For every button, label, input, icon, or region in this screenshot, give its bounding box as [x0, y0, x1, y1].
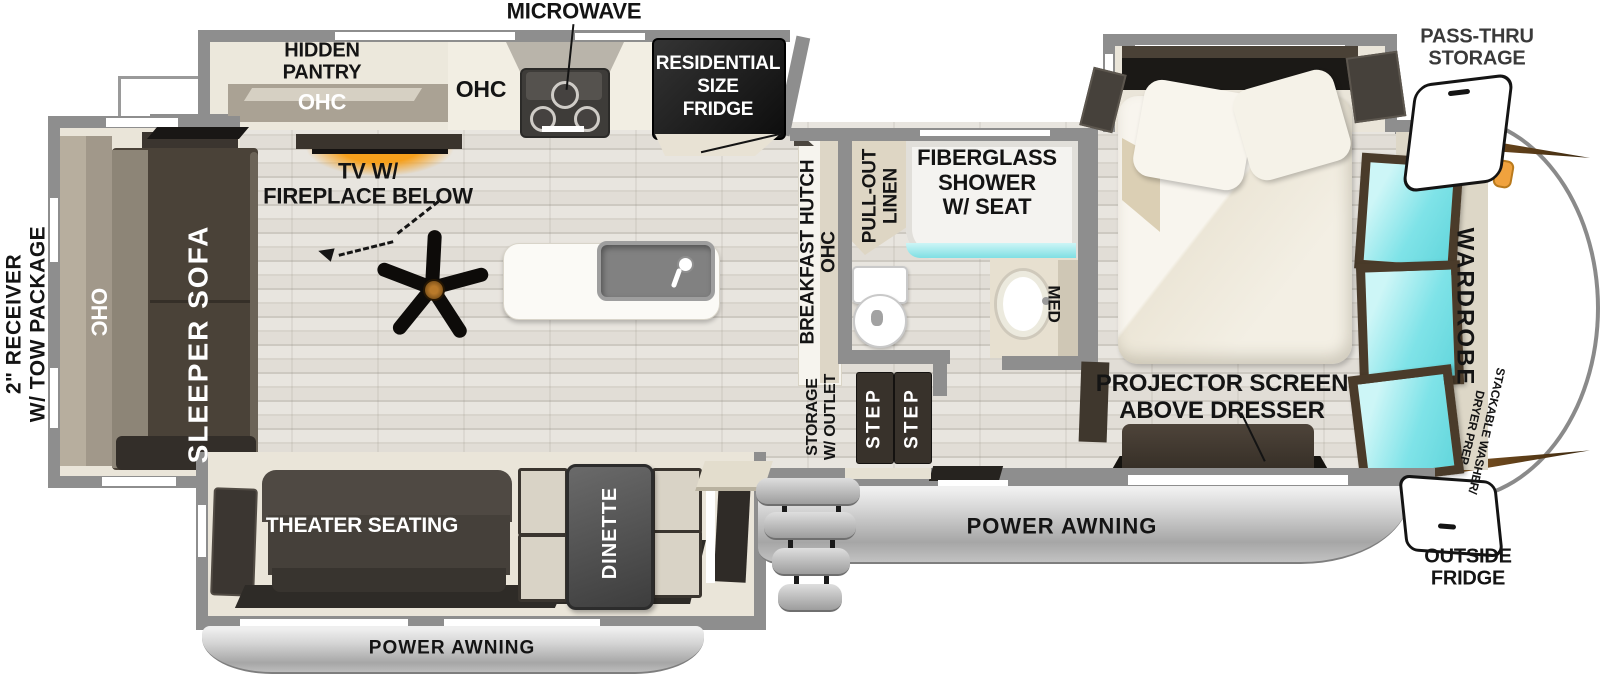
med-label: MED [1044, 285, 1063, 322]
bedroom-bottom-window-gap [1128, 475, 1348, 485]
exterior-step-tread [756, 478, 860, 506]
bath-bedroom-divider-wall [1078, 128, 1098, 364]
sofa-slide-gap-left1 [50, 198, 58, 262]
floorplan-canvas: MICROWAVE HIDDEN PANTRY OHC OHC RESIDENT… [0, 0, 1600, 695]
breakfast-hutch-label: BREAKFAST HUTCH OHC [798, 160, 841, 345]
storage-line2: W/ OUTLET [822, 374, 840, 460]
passthru-line2: STORAGE [1420, 48, 1533, 70]
receiver-label: 2" RECEIVER W/ TOW PACKAGE [2, 226, 49, 422]
end-table [210, 487, 258, 596]
sofa-arm-top-bevel [147, 127, 249, 139]
threshold-mat [929, 466, 1003, 481]
power-awning-left-label: POWER AWNING [369, 637, 535, 658]
dinette-bench [652, 468, 702, 534]
sofa-slide-gap-top [106, 118, 178, 127]
theater-slide-gap-left [198, 505, 206, 557]
receiver-line2: W/ TOW PACKAGE [26, 226, 50, 422]
theater-sofa-front [272, 568, 506, 592]
sofa-backrest [112, 150, 148, 468]
fan-hub-icon [423, 279, 445, 301]
sofa-ohc-label: OHC [86, 288, 111, 336]
pullout-linen-label: PULL-OUT LINEN [860, 149, 903, 243]
entry-door-jamb [706, 487, 715, 583]
hutch-line1: BREAKFAST HUTCH [798, 160, 819, 345]
fridge-label: RESIDENTIAL SIZE FRIDGE [656, 53, 780, 121]
sofa-slide-gap-bottom [102, 477, 176, 486]
tv-line1: TV W/ [263, 159, 473, 184]
exterior-step-tread [764, 512, 856, 540]
exterior-step-tread [772, 548, 850, 576]
fridge-line1: RESIDENTIAL [656, 53, 780, 76]
outside-fridge-label: OUTSIDE FRIDGE [1424, 546, 1512, 591]
tv-line2: FIREPLACE BELOW [263, 184, 473, 209]
exterior-step-tread [778, 584, 842, 612]
pantry-window-gap [335, 32, 515, 40]
sleeper-sofa-label: SLEEPER SOFA [182, 225, 213, 464]
fridge-line2: SIZE [656, 76, 780, 99]
hidden-pantry-label: HIDDEN PANTRY [283, 40, 362, 85]
dinette-bench [518, 468, 568, 536]
shower-line2: SHOWER [917, 171, 1057, 196]
toilet-flush-icon [871, 310, 883, 326]
shower-line1: FIBERGLASS [917, 146, 1057, 171]
outside-fridge-line1: OUTSIDE [1424, 546, 1512, 568]
step-label: STEP [863, 387, 884, 449]
linen-line1: PULL-OUT [860, 149, 881, 243]
entry-door-panel [714, 489, 751, 583]
hidden-pantry-line2: PANTRY [283, 62, 362, 84]
theater-seating-label: THEATER SEATING [266, 514, 458, 538]
passthru-line1: PASS-THRU [1420, 26, 1533, 48]
storage-line1: STORAGE [804, 374, 822, 460]
interior-floor-edge [845, 468, 931, 479]
receiver-line1: 2" RECEIVER [2, 226, 26, 422]
kitchen-window-gap [575, 33, 645, 40]
projector-label: PROJECTOR SCREEN ABOVE DRESSER [1096, 371, 1348, 425]
kitchen-ohc-label: OHC [456, 77, 507, 103]
sofa-front-edge [250, 152, 258, 466]
hidden-pantry-line1: HIDDEN [283, 40, 362, 62]
tv-fireplace-label: TV W/ FIREPLACE BELOW [263, 159, 473, 208]
dinette-bench [652, 530, 702, 598]
shower-water-edge [906, 243, 1076, 258]
outside-fridge-line2: FRIDGE [1424, 568, 1512, 590]
stove-drawer [542, 126, 584, 132]
passthru-label: PASS-THRU STORAGE [1420, 26, 1533, 71]
tv-fireplace-unit [296, 134, 462, 149]
power-awning-right-label: POWER AWNING [967, 515, 1158, 540]
dinette-label: DINETTE [599, 487, 621, 580]
linen-line2: LINEN [881, 149, 902, 243]
storage-outlet-label: STORAGE W/ OUTLET [804, 374, 840, 460]
nightstand-panel [1346, 51, 1407, 124]
step-label: STEP [901, 387, 922, 449]
wardrobe-label: WARDROBE [1451, 228, 1478, 387]
hutch-line2: OHC [819, 160, 840, 345]
dinette-bench [518, 534, 568, 602]
projector-line2: ABOVE DRESSER [1096, 398, 1348, 425]
tv-screen-bar [312, 149, 448, 154]
island-sink [597, 241, 715, 301]
shower-line3: W/ SEAT [917, 195, 1057, 220]
microwave-label: MICROWAVE [507, 0, 642, 24]
shower-label: FIBERGLASS SHOWER W/ SEAT [917, 146, 1057, 220]
projector-line1: PROJECTOR SCREEN [1096, 371, 1348, 398]
hall-wall-stub [933, 350, 947, 396]
fridge-line3: FRIDGE [656, 98, 780, 121]
sofa-slide-gap-left2 [50, 368, 58, 428]
bath-window-gap [920, 130, 1050, 136]
pantry-ohc-label: OHC [298, 91, 346, 116]
